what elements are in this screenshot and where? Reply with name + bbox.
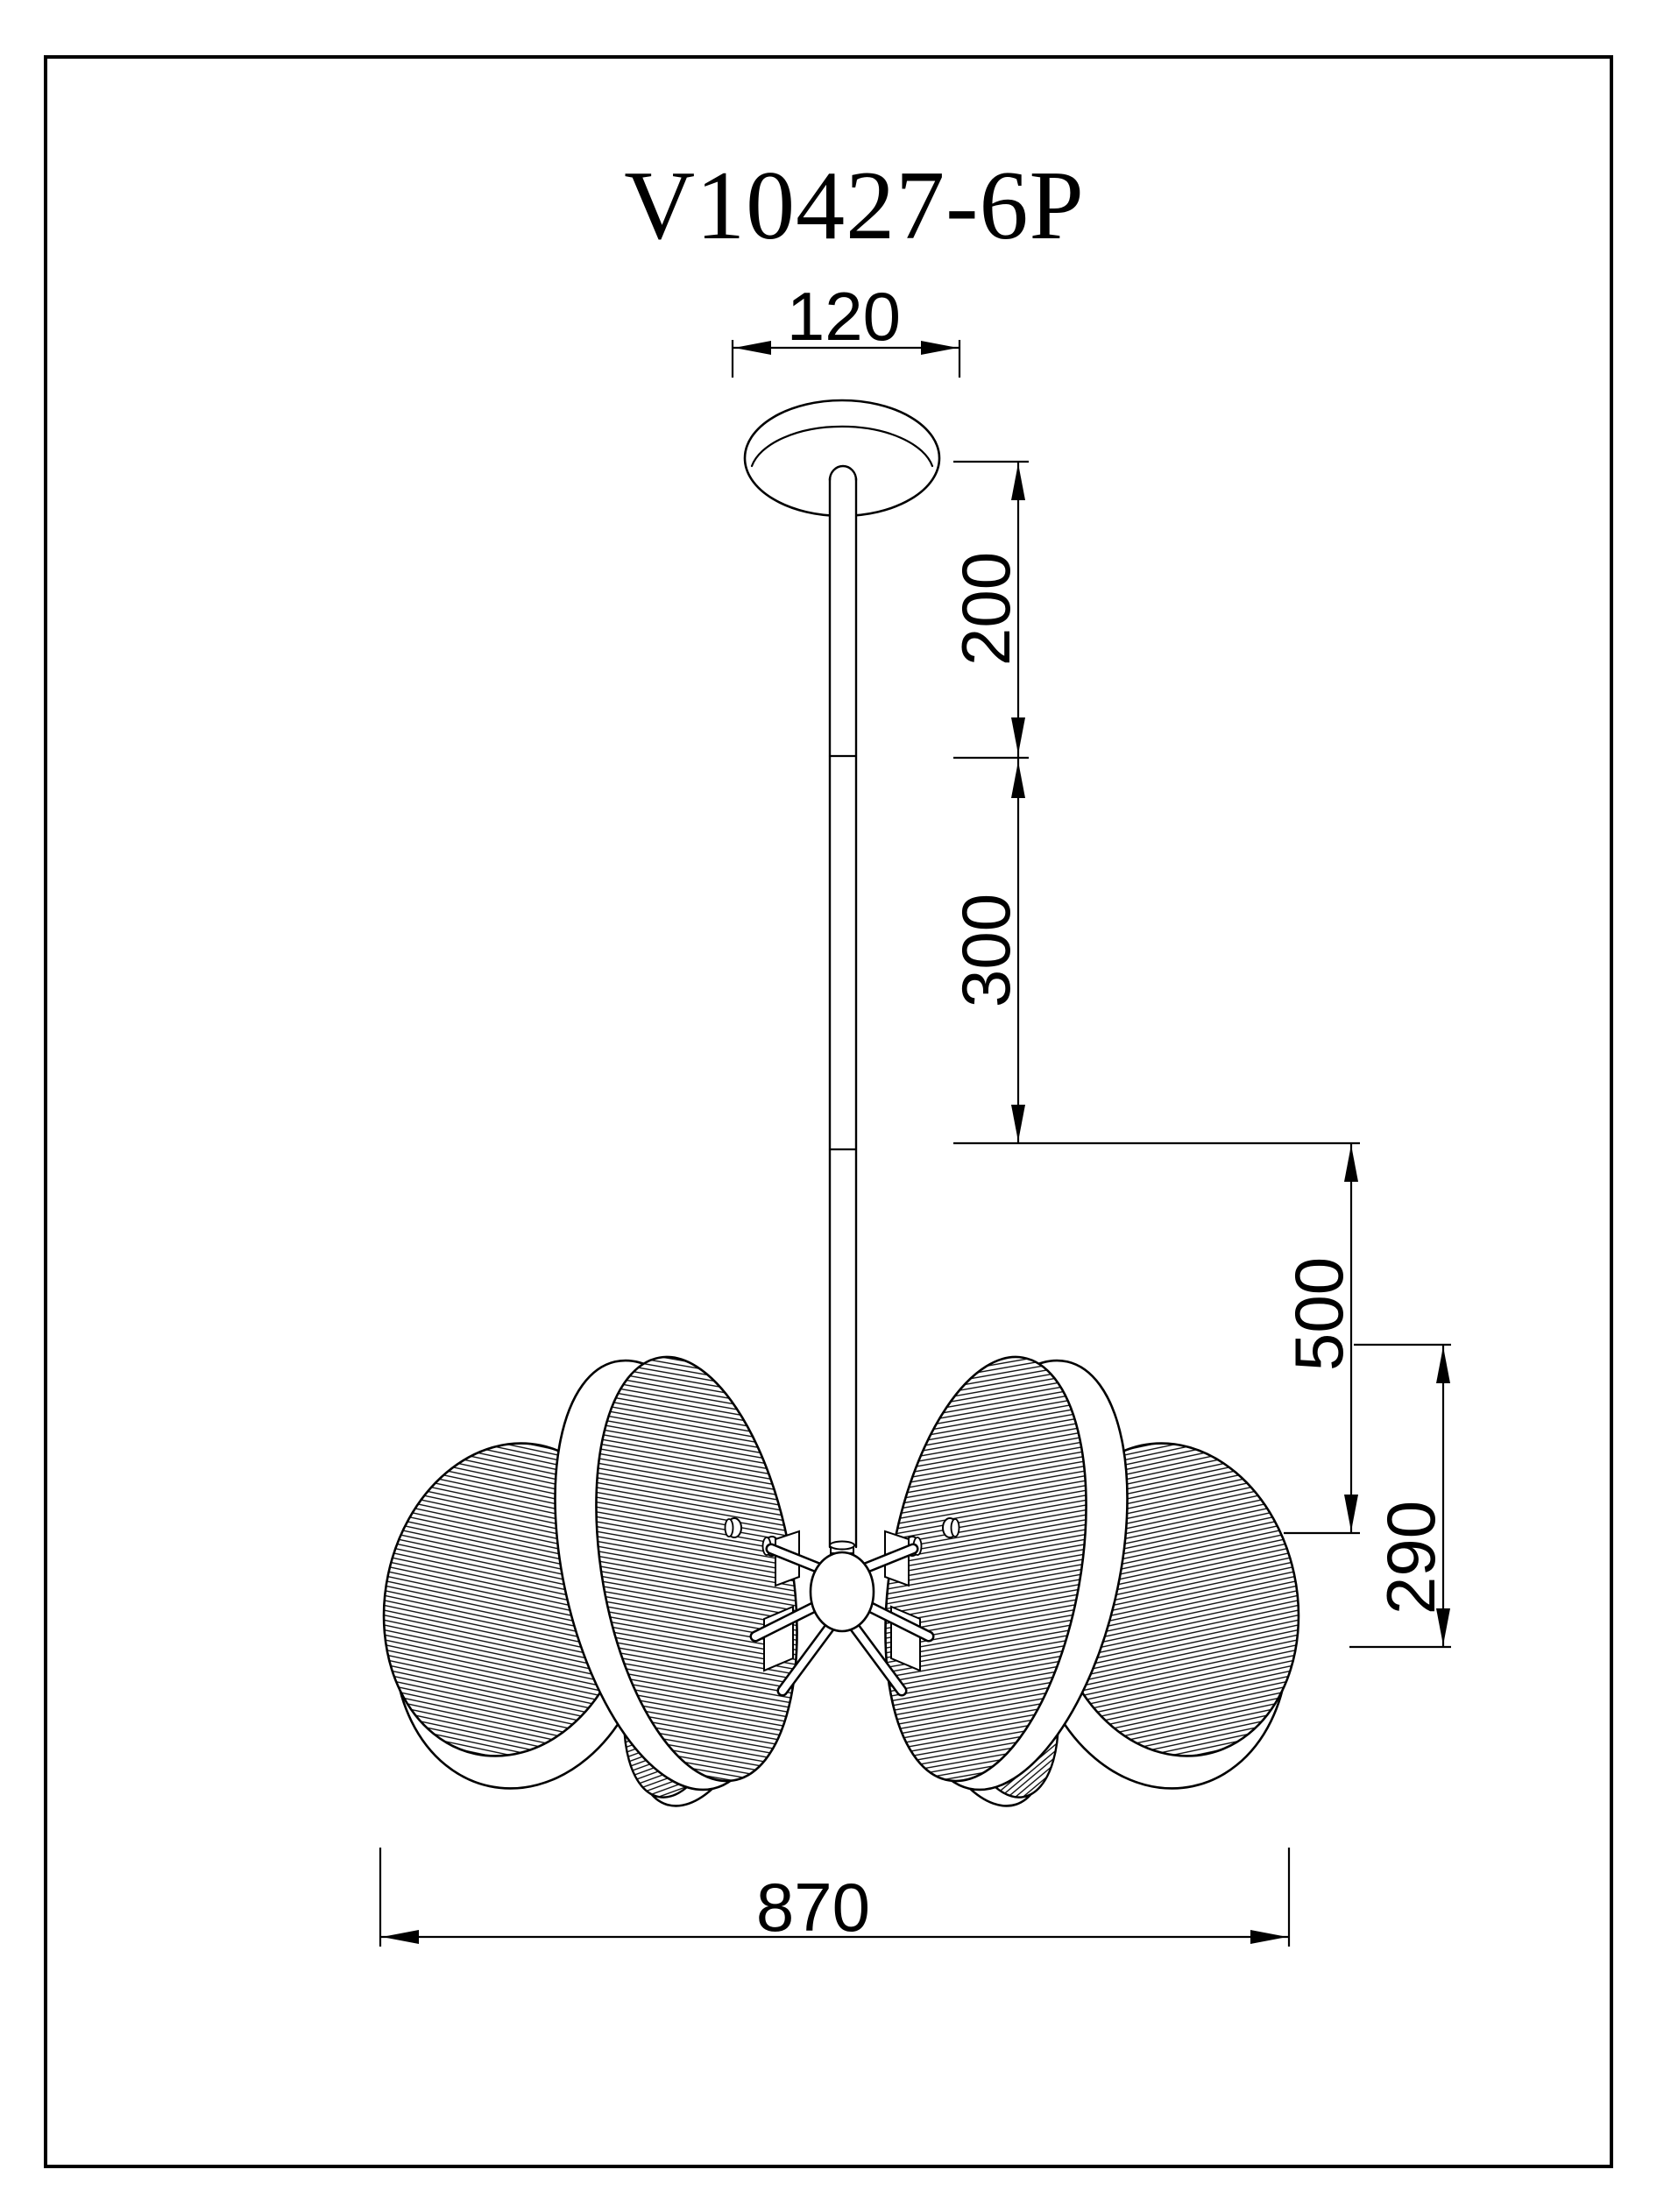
arrow-left <box>734 341 771 355</box>
dimension-hub-drop: 500 <box>1280 1143 1360 1533</box>
dim-upper-rod-label: 200 <box>947 552 1024 666</box>
arrow-up <box>1344 1145 1358 1182</box>
dim-lower-rod-label: 300 <box>947 894 1024 1007</box>
center-hub <box>811 1542 874 1632</box>
dim-hub-drop-label: 500 <box>1280 1257 1357 1371</box>
dim-shade-height-label: 290 <box>1372 1501 1449 1615</box>
arrow-down <box>1011 717 1025 754</box>
dimension-total-width: 870 <box>380 1848 1289 1947</box>
arrow-down <box>1011 1105 1025 1141</box>
arrow-down <box>1344 1495 1358 1531</box>
dimension-rod-lengths: 200 300 <box>947 462 1360 1143</box>
dim-canopy-width-label: 120 <box>787 278 901 355</box>
technical-drawing: V10427-6P <box>0 0 1664 2212</box>
page-border <box>46 57 1611 2166</box>
hanging-rod <box>830 466 856 1548</box>
arrow-up <box>1436 1346 1450 1383</box>
dimension-shade-height: 290 <box>1349 1345 1451 1647</box>
dimension-canopy-width: 120 <box>733 278 959 378</box>
drawing-title: V10427-6P <box>624 152 1084 260</box>
dim-total-width-label: 870 <box>756 1869 870 1946</box>
arrow-up <box>1011 463 1025 500</box>
arrow-right <box>921 341 958 355</box>
arrow-right <box>1250 1930 1287 1944</box>
chandelier <box>356 400 1328 1822</box>
drawing-sheet: V10427-6P <box>0 0 1664 2212</box>
arrow-left <box>382 1930 419 1944</box>
arrow-up <box>1011 761 1025 798</box>
